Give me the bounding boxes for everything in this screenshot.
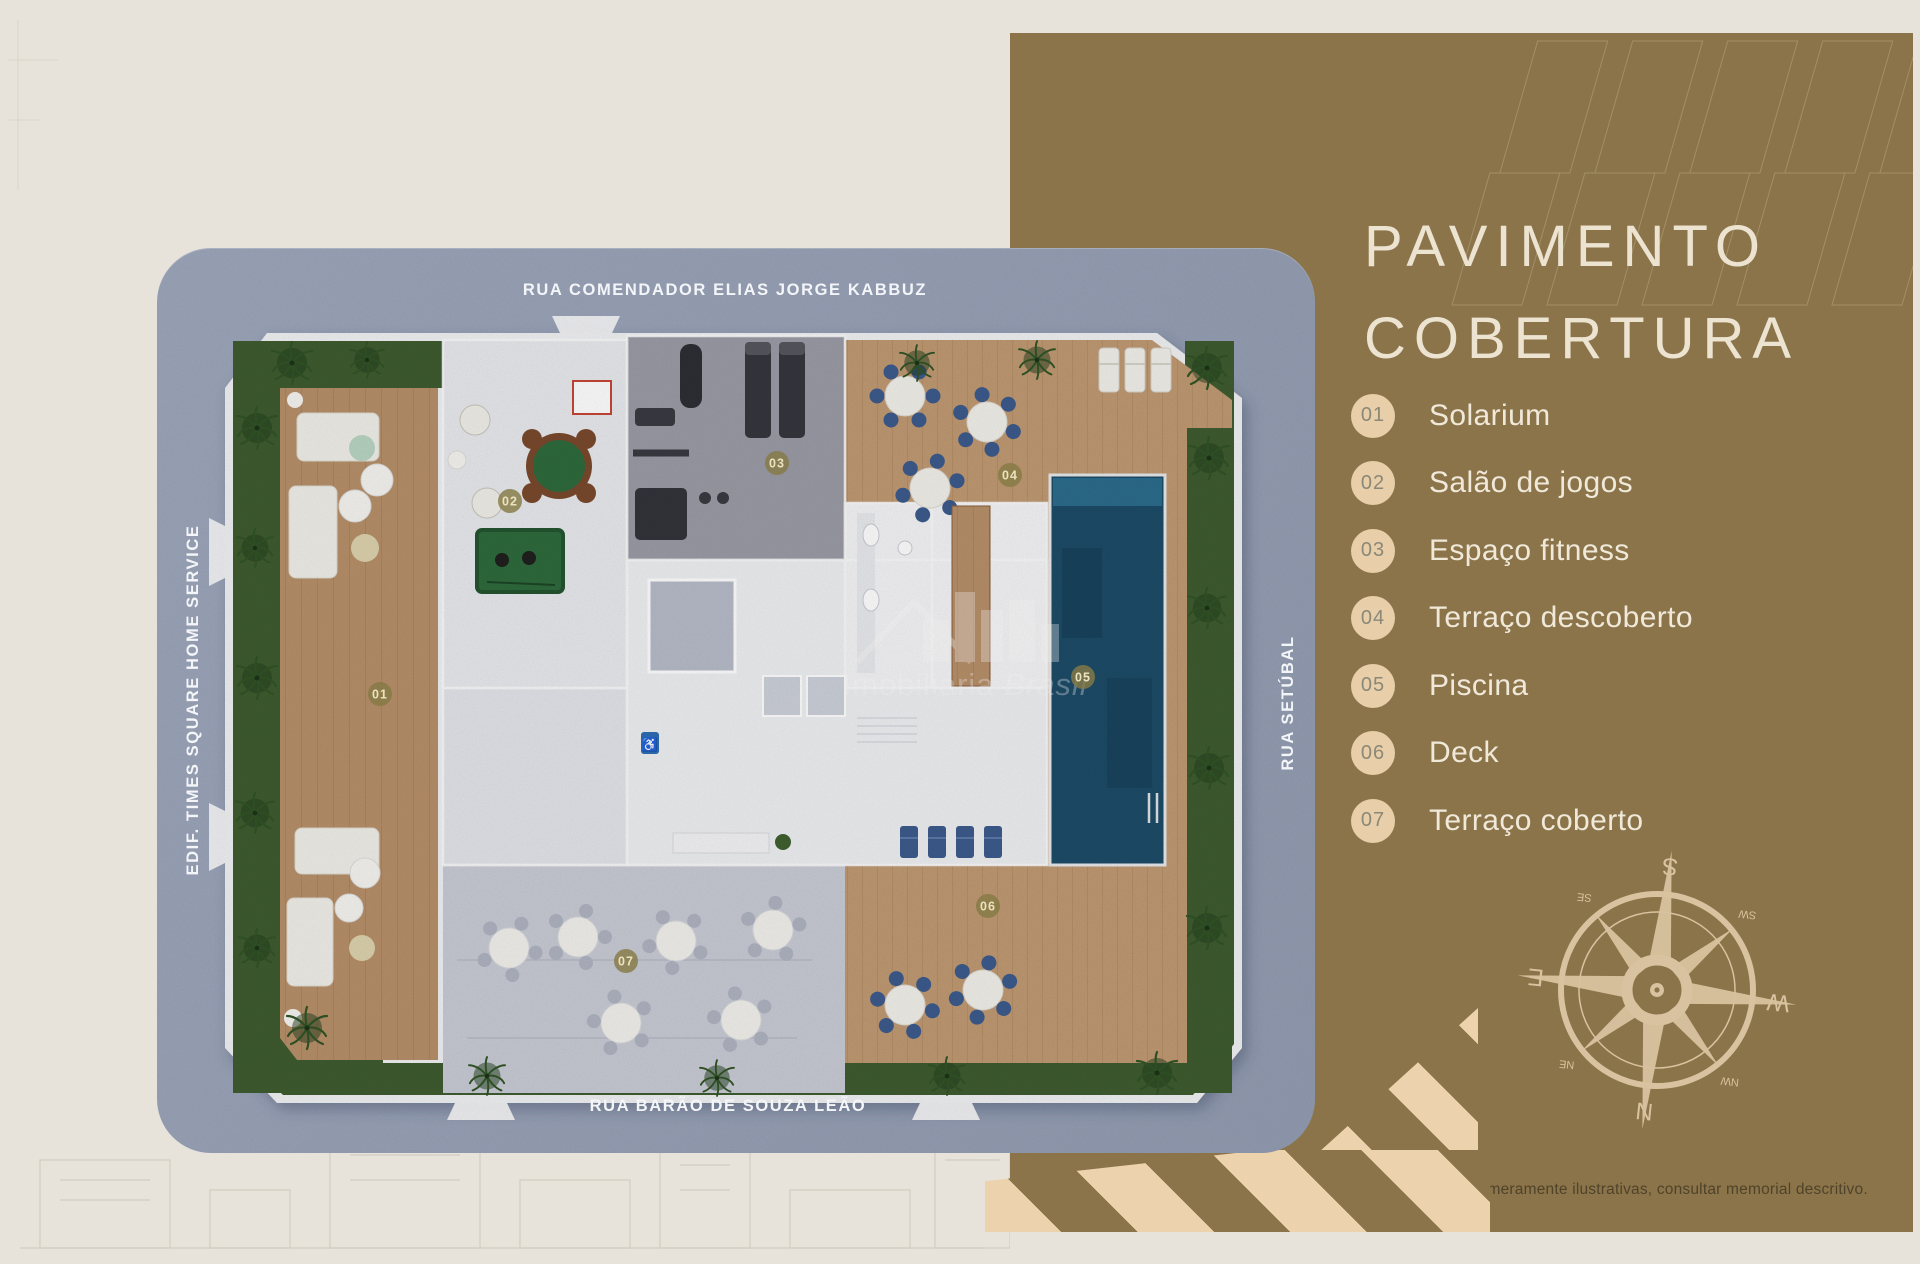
legend-badge: 06 bbox=[1351, 731, 1395, 775]
legend-badge: 02 bbox=[1351, 461, 1395, 505]
street-label-left: EDIF. TIMES SQUARE HOME SERVICE bbox=[184, 525, 202, 876]
legend-item-terraco-descoberto: 04 Terraço descoberto bbox=[1351, 585, 1693, 653]
floor-plan: ♿ bbox=[157, 248, 1315, 1153]
street-label-right: RUA SETÚBAL bbox=[1278, 635, 1297, 770]
marker-solarium: 01 bbox=[368, 682, 392, 706]
svg-text:02: 02 bbox=[502, 495, 518, 509]
svg-text:01: 01 bbox=[372, 688, 388, 702]
svg-text:03: 03 bbox=[769, 457, 785, 471]
marker-deck: 06 bbox=[976, 894, 1000, 918]
legend-list: 01 Solarium 02 Salão de jogos 03 Espaço … bbox=[1351, 382, 1693, 855]
legend-label: Terraço coberto bbox=[1429, 804, 1643, 838]
page-title: PAVIMENTO COBERTURA bbox=[1364, 201, 1799, 385]
compass-southwest-label: SW bbox=[1737, 907, 1756, 921]
marker-terraco-descoberto: 04 bbox=[998, 463, 1022, 487]
legend-label: Deck bbox=[1429, 736, 1499, 770]
page-title-line1: PAVIMENTO bbox=[1364, 201, 1799, 293]
floor-plan-card: ♿ bbox=[157, 248, 1315, 1153]
brochure-page: PAVIMENTO COBERTURA 01 Solarium 02 Salão… bbox=[0, 0, 1920, 1264]
legend-badge: 05 bbox=[1351, 664, 1395, 708]
marker-terraco-coberto: 07 bbox=[614, 949, 638, 973]
legend-item-deck: 06 Deck bbox=[1351, 720, 1693, 788]
legend-label: Salão de jogos bbox=[1429, 466, 1633, 500]
legend-badge: 04 bbox=[1351, 596, 1395, 640]
compass-south-label: S bbox=[1661, 852, 1680, 881]
legend-item-salao-de-jogos: 02 Salão de jogos bbox=[1351, 450, 1693, 518]
compass-southeast-label: SE bbox=[1576, 890, 1592, 903]
compass-northeast-label: NE bbox=[1559, 1057, 1575, 1071]
legend-item-espaco-fitness: 03 Espaço fitness bbox=[1351, 517, 1693, 585]
svg-text:07: 07 bbox=[618, 955, 634, 969]
marker-salao-de-jogos: 02 bbox=[498, 489, 522, 513]
svg-text:05: 05 bbox=[1075, 671, 1091, 685]
legend-badge: 01 bbox=[1351, 394, 1395, 438]
legend-label: Terraço descoberto bbox=[1429, 601, 1693, 635]
legend-label: Piscina bbox=[1429, 669, 1529, 703]
sketch-decoration-topleft bbox=[0, 0, 220, 260]
street-label-top: RUA COMENDADOR ELIAS JORGE KABBUZ bbox=[523, 281, 927, 299]
legend-item-solarium: 01 Solarium bbox=[1351, 382, 1693, 450]
page-title-line2: COBERTURA bbox=[1364, 293, 1799, 385]
legend-badge: 07 bbox=[1351, 799, 1395, 843]
svg-text:06: 06 bbox=[980, 900, 996, 914]
legend-label: Solarium bbox=[1429, 399, 1551, 433]
compass-west-label: W bbox=[1765, 988, 1791, 1017]
street-label-bottom: RUA BARÃO DE SOUZA LEÃO bbox=[590, 1095, 867, 1115]
compass-north-label: N bbox=[1634, 1097, 1654, 1126]
grain-texture bbox=[157, 248, 1315, 1153]
legend-badge: 03 bbox=[1351, 529, 1395, 573]
marker-piscina: 05 bbox=[1071, 665, 1095, 689]
svg-text:04: 04 bbox=[1002, 469, 1018, 483]
marker-espaco-fitness: 03 bbox=[765, 451, 789, 475]
legend-item-piscina: 05 Piscina bbox=[1351, 652, 1693, 720]
compass-east-label: E bbox=[1526, 962, 1545, 991]
compass-northwest-label: NW bbox=[1720, 1074, 1740, 1088]
compass-rose-icon: N S E W NE SE SW NW bbox=[1507, 840, 1807, 1140]
legend-label: Espaço fitness bbox=[1429, 534, 1630, 568]
